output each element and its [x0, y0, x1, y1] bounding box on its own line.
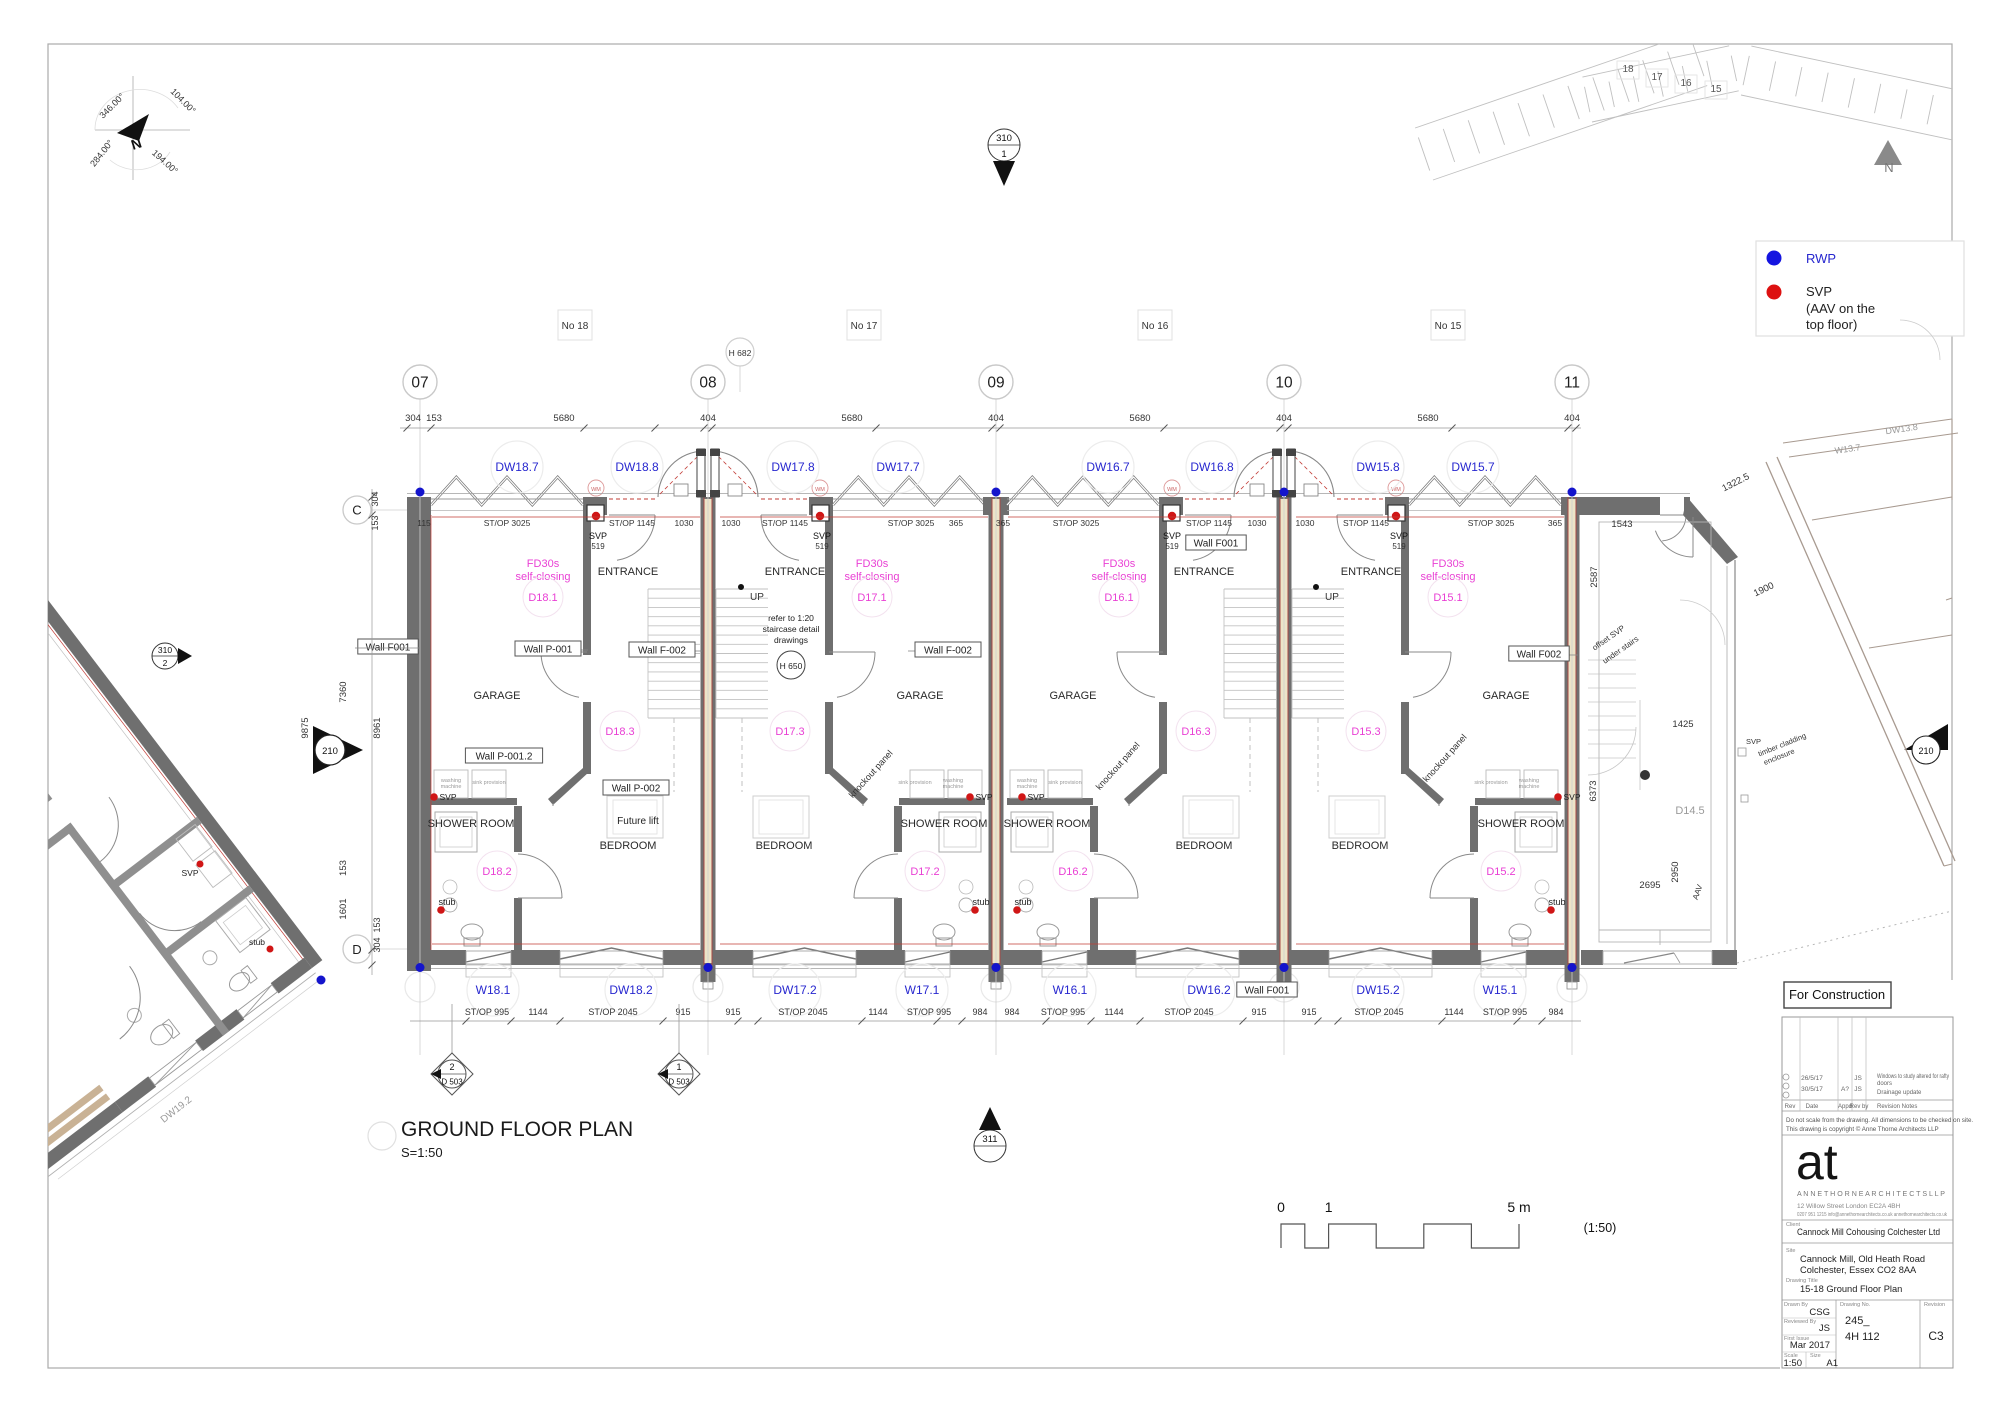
- svg-text:D 503: D 503: [441, 1078, 463, 1087]
- svg-text:S=1:50: S=1:50: [401, 1145, 443, 1160]
- svg-text:D15.1: D15.1: [1433, 592, 1462, 604]
- svg-text:W15.1: W15.1: [1483, 983, 1518, 997]
- svg-text:DW18.8: DW18.8: [615, 460, 659, 474]
- svg-text:6373: 6373: [1588, 780, 1599, 801]
- svg-text:5680: 5680: [1417, 413, 1438, 424]
- svg-text:Drawing No.: Drawing No.: [1840, 1302, 1871, 1308]
- svg-text:SVP: SVP: [1163, 531, 1181, 541]
- svg-text:RWP: RWP: [1806, 251, 1836, 266]
- svg-text:No 17: No 17: [851, 321, 878, 332]
- svg-text:D16.2: D16.2: [1058, 866, 1087, 878]
- svg-text:DW13.8: DW13.8: [1885, 422, 1919, 436]
- svg-text:A N N E T H O R N E A R C: A N N E T H O R N E A R C H I T E C T S …: [1797, 1191, 1945, 1198]
- svg-text:SHOWER ROOM: SHOWER ROOM: [1478, 818, 1565, 830]
- svg-text:W16.1: W16.1: [1053, 983, 1088, 997]
- svg-text:194.00°: 194.00°: [150, 148, 180, 177]
- svg-text:26/5/17: 26/5/17: [1801, 1075, 1823, 1082]
- svg-text:404: 404: [1564, 413, 1580, 424]
- svg-text:17: 17: [1651, 72, 1663, 83]
- svg-text:C3: C3: [1928, 1329, 1944, 1343]
- svg-text:machine: machine: [1519, 784, 1540, 790]
- svg-text:drawings: drawings: [774, 635, 808, 645]
- svg-text:ENTRANCE: ENTRANCE: [598, 566, 659, 578]
- svg-text:1030: 1030: [722, 518, 741, 528]
- svg-text:stub: stub: [249, 937, 265, 947]
- svg-text:No 15: No 15: [1435, 321, 1462, 332]
- svg-text:DW15.2: DW15.2: [1356, 983, 1400, 997]
- svg-text:7360: 7360: [338, 681, 349, 702]
- svg-text:1030: 1030: [675, 518, 694, 528]
- svg-text:Rev by: Rev by: [1850, 1104, 1869, 1110]
- svg-text:ST/OP 995: ST/OP 995: [1041, 1007, 1085, 1017]
- svg-text:915: 915: [1301, 1007, 1316, 1017]
- svg-text:knockout panel: knockout panel: [1421, 732, 1469, 784]
- svg-text:GROUND FLOOR PLAN: GROUND FLOOR PLAN: [401, 1118, 633, 1141]
- svg-text:GARAGE: GARAGE: [1482, 690, 1529, 702]
- svg-text:A?: A?: [1841, 1086, 1849, 1093]
- svg-text:GARAGE: GARAGE: [896, 690, 943, 702]
- svg-text:Wall F002: Wall F002: [1517, 650, 1562, 661]
- svg-text:SHOWER ROOM: SHOWER ROOM: [1004, 818, 1091, 830]
- svg-text:DW16.2: DW16.2: [1187, 983, 1231, 997]
- svg-text:210: 210: [322, 746, 338, 757]
- svg-text:DW17.8: DW17.8: [771, 460, 815, 474]
- svg-text:Wall F001: Wall F001: [1194, 539, 1239, 550]
- svg-text:153: 153: [372, 917, 382, 932]
- svg-text:DW16.7: DW16.7: [1086, 460, 1130, 474]
- svg-text:284.00°: 284.00°: [88, 138, 115, 169]
- svg-text:(AAV on the: (AAV on the: [1806, 301, 1875, 316]
- svg-text:D16.3: D16.3: [1181, 726, 1210, 738]
- svg-text:FD30s: FD30s: [1432, 558, 1465, 570]
- svg-text:UP: UP: [750, 592, 764, 603]
- svg-text:AAV: AAV: [1691, 883, 1705, 901]
- svg-text:210: 210: [1918, 746, 1933, 756]
- svg-text:310: 310: [158, 645, 172, 655]
- svg-text:915: 915: [725, 1007, 740, 1017]
- svg-text:115: 115: [417, 518, 431, 528]
- svg-text:Drainage update: Drainage update: [1877, 1090, 1922, 1096]
- svg-text:FD30s: FD30s: [527, 558, 560, 570]
- svg-text:365: 365: [949, 518, 963, 528]
- svg-text:ST/OP 3025: ST/OP 3025: [1468, 518, 1515, 528]
- svg-text:machine: machine: [943, 784, 964, 790]
- svg-text:ST/OP 1145: ST/OP 1145: [762, 518, 808, 528]
- svg-text:153: 153: [426, 413, 442, 424]
- svg-text:D: D: [352, 942, 361, 957]
- svg-text:stub: stub: [438, 897, 455, 907]
- svg-text:984: 984: [1004, 1007, 1019, 1017]
- svg-text:1543: 1543: [1611, 519, 1632, 530]
- svg-text:1:50: 1:50: [1784, 1358, 1803, 1369]
- svg-text:W13.7: W13.7: [1834, 442, 1861, 456]
- svg-text:D18.2: D18.2: [482, 866, 511, 878]
- svg-text:BEDROOM: BEDROOM: [1176, 840, 1233, 852]
- svg-text:2950: 2950: [1670, 861, 1681, 882]
- svg-text:1030: 1030: [1248, 518, 1267, 528]
- svg-text:D 503: D 503: [668, 1078, 690, 1087]
- svg-text:ST/OP 3025: ST/OP 3025: [888, 518, 935, 528]
- svg-text:SVP: SVP: [181, 868, 198, 878]
- svg-text:sink provision: sink provision: [472, 780, 505, 786]
- svg-text:ST/OP 3025: ST/OP 3025: [1053, 518, 1100, 528]
- svg-text:BEDROOM: BEDROOM: [1332, 840, 1389, 852]
- svg-text:15-18 Ground Floor Plan: 15-18 Ground Floor Plan: [1800, 1284, 1902, 1294]
- svg-text:1144: 1144: [1104, 1007, 1123, 1017]
- svg-text:DW15.8: DW15.8: [1356, 460, 1400, 474]
- svg-text:D15.3: D15.3: [1351, 726, 1380, 738]
- svg-text:1144: 1144: [528, 1007, 547, 1017]
- svg-text:9875: 9875: [300, 717, 311, 738]
- svg-text:H 682: H 682: [729, 348, 752, 358]
- svg-text:Reviewed By: Reviewed By: [1784, 1319, 1816, 1325]
- svg-text:JS: JS: [1819, 1323, 1830, 1334]
- svg-text:ST/OP 2045: ST/OP 2045: [778, 1007, 827, 1017]
- svg-text:5680: 5680: [841, 413, 862, 424]
- svg-text:984: 984: [1548, 1007, 1563, 1017]
- svg-text:refer to 1:20: refer to 1:20: [768, 613, 814, 623]
- svg-text:(1:50): (1:50): [1584, 1221, 1617, 1235]
- svg-text:1425: 1425: [1672, 719, 1693, 730]
- svg-text:This drawing is copyright: This drawing is copyright © Anne Thorne …: [1786, 1126, 1939, 1133]
- svg-text:SVP: SVP: [589, 531, 607, 541]
- svg-text:1: 1: [1001, 149, 1006, 160]
- svg-text:D18.3: D18.3: [605, 726, 634, 738]
- svg-text:Wall F-002: Wall F-002: [638, 646, 686, 657]
- svg-text:SVP: SVP: [813, 531, 831, 541]
- svg-text:ST/OP 995: ST/OP 995: [1483, 1007, 1527, 1017]
- svg-text:519: 519: [815, 542, 829, 551]
- svg-text:Wall F-002: Wall F-002: [924, 646, 972, 657]
- svg-text:07: 07: [411, 375, 428, 392]
- svg-text:SVP: SVP: [439, 792, 456, 802]
- svg-text:DW16.8: DW16.8: [1190, 460, 1234, 474]
- svg-text:Site: Site: [1786, 1248, 1795, 1254]
- svg-text:D17.1: D17.1: [857, 592, 886, 604]
- svg-text:404: 404: [988, 413, 1004, 424]
- svg-text:15: 15: [1710, 84, 1722, 95]
- svg-text:ENTRANCE: ENTRANCE: [1174, 566, 1235, 578]
- svg-text:365: 365: [996, 518, 1010, 528]
- svg-text:staircase detail: staircase detail: [763, 624, 820, 634]
- svg-text:D16.1: D16.1: [1104, 592, 1133, 604]
- svg-text:304: 304: [405, 413, 421, 424]
- svg-text:Cannock Mill, Old Heath Road: Cannock Mill, Old Heath Road: [1800, 1254, 1925, 1264]
- svg-text:DW18.2: DW18.2: [609, 983, 653, 997]
- svg-text:DW17.7: DW17.7: [876, 460, 920, 474]
- svg-text:30/5/17: 30/5/17: [1801, 1086, 1823, 1093]
- svg-text:SVP: SVP: [1746, 737, 1761, 746]
- svg-text:5680: 5680: [1129, 413, 1150, 424]
- svg-text:2587: 2587: [1589, 566, 1600, 587]
- svg-text:stub: stub: [1548, 897, 1565, 907]
- svg-text:No 16: No 16: [1142, 321, 1169, 332]
- svg-text:Wall P-001: Wall P-001: [524, 645, 573, 656]
- svg-text:sink provision: sink provision: [1048, 780, 1081, 786]
- svg-text:DW17.2: DW17.2: [773, 983, 817, 997]
- svg-text:915: 915: [675, 1007, 690, 1017]
- svg-text:SVP: SVP: [1027, 792, 1044, 802]
- svg-text:Cannock Mill Cohousing Colches: Cannock Mill Cohousing Colchester Ltd: [1797, 1227, 1940, 1237]
- svg-text:ST/OP 2045: ST/OP 2045: [1164, 1007, 1213, 1017]
- svg-text:For Construction: For Construction: [1789, 987, 1885, 1002]
- svg-text:ST/OP 2045: ST/OP 2045: [1354, 1007, 1403, 1017]
- svg-text:1: 1: [1325, 1199, 1333, 1215]
- svg-text:D18.1: D18.1: [528, 592, 557, 604]
- svg-text:Drawn By: Drawn By: [1784, 1302, 1808, 1308]
- svg-text:5680: 5680: [553, 413, 574, 424]
- svg-text:ST/OP 1145: ST/OP 1145: [1186, 518, 1232, 528]
- svg-text:2: 2: [449, 1062, 454, 1072]
- svg-text:1900: 1900: [1752, 580, 1776, 599]
- svg-text:Wall P-001.2: Wall P-001.2: [476, 752, 533, 763]
- svg-text:245_: 245_: [1845, 1315, 1870, 1327]
- svg-text:311: 311: [982, 1134, 997, 1145]
- svg-text:ST/OP 1145: ST/OP 1145: [1343, 518, 1389, 528]
- svg-text:UP: UP: [1325, 592, 1339, 603]
- svg-text:sink provision: sink provision: [898, 780, 931, 786]
- svg-text:DW15.7: DW15.7: [1451, 460, 1495, 474]
- svg-text:365: 365: [1548, 518, 1562, 528]
- svg-text:WM: WM: [591, 487, 601, 493]
- svg-text:ST/OP 3025: ST/OP 3025: [484, 518, 531, 528]
- svg-text:Size: Size: [1810, 1353, 1821, 1359]
- svg-text:10: 10: [1275, 375, 1293, 392]
- svg-text:Wall F001: Wall F001: [1245, 986, 1290, 997]
- svg-text:sink provision: sink provision: [1474, 780, 1507, 786]
- svg-text:top floor): top floor): [1806, 317, 1857, 332]
- svg-text:18: 18: [1622, 64, 1634, 75]
- svg-text:1030: 1030: [1296, 518, 1315, 528]
- svg-text:Colchester, Essex CO2 8AA: Colchester, Essex CO2 8AA: [1800, 1265, 1917, 1275]
- svg-text:CSG: CSG: [1809, 1307, 1830, 1318]
- svg-text:FD30s: FD30s: [856, 558, 889, 570]
- svg-text:8961: 8961: [372, 717, 383, 738]
- svg-text:DW18.7: DW18.7: [495, 460, 539, 474]
- svg-text:BEDROOM: BEDROOM: [600, 840, 657, 852]
- svg-text:Windows to study altered for r: Windows to study altered for rafty: [1877, 1074, 1949, 1080]
- svg-text:304: 304: [370, 491, 380, 506]
- svg-text:BEDROOM: BEDROOM: [756, 840, 813, 852]
- svg-text:D17.3: D17.3: [775, 726, 804, 738]
- svg-text:404: 404: [700, 413, 716, 424]
- svg-text:915: 915: [1251, 1007, 1266, 1017]
- svg-text:1144: 1144: [868, 1007, 887, 1017]
- svg-text:Revision: Revision: [1924, 1302, 1945, 1308]
- svg-text:ENTRANCE: ENTRANCE: [1341, 566, 1402, 578]
- svg-text:D17.2: D17.2: [910, 866, 939, 878]
- svg-text:5 m: 5 m: [1507, 1199, 1530, 1215]
- svg-text:D14.5: D14.5: [1675, 805, 1704, 817]
- svg-text:No 18: No 18: [562, 321, 589, 332]
- svg-text:SHOWER ROOM: SHOWER ROOM: [428, 818, 515, 830]
- svg-text:ST/OP 995: ST/OP 995: [907, 1007, 951, 1017]
- svg-text:Future lift: Future lift: [617, 816, 659, 827]
- svg-text:104.00°: 104.00°: [169, 86, 198, 115]
- svg-text:1144: 1144: [1444, 1007, 1463, 1017]
- svg-text:08: 08: [699, 375, 716, 392]
- svg-text:519: 519: [591, 542, 605, 551]
- svg-text:doors: doors: [1877, 1081, 1892, 1087]
- svg-text:1322.5: 1322.5: [1720, 471, 1751, 494]
- svg-text:GARAGE: GARAGE: [1049, 690, 1096, 702]
- svg-text:310: 310: [996, 133, 1012, 144]
- svg-text:W17.1: W17.1: [905, 983, 940, 997]
- svg-text:1601: 1601: [338, 898, 349, 919]
- svg-text:at: at: [1796, 1134, 1838, 1190]
- svg-text:153: 153: [338, 860, 349, 876]
- svg-text:Wall P-002: Wall P-002: [612, 784, 661, 795]
- svg-text:N: N: [129, 135, 144, 153]
- svg-text:SVP: SVP: [975, 792, 992, 802]
- svg-text:346.00°: 346.00°: [97, 91, 126, 120]
- svg-text:Mar 2017: Mar 2017: [1790, 1340, 1830, 1351]
- svg-text:Date: Date: [1806, 1104, 1819, 1110]
- svg-text:H 650: H 650: [780, 661, 803, 671]
- svg-text:4H 112: 4H 112: [1845, 1331, 1880, 1343]
- svg-text:Revision Notes: Revision Notes: [1877, 1104, 1917, 1110]
- svg-text:SVP: SVP: [1563, 792, 1580, 802]
- svg-text:0207 951 1215 info@annethorne: 0207 951 1215 info@annethornearchitects.…: [1797, 1212, 1947, 1218]
- svg-text:stub: stub: [972, 897, 989, 907]
- svg-text:DW19.2: DW19.2: [159, 1094, 195, 1125]
- svg-text:WM: WM: [1167, 487, 1177, 493]
- svg-text:stub: stub: [1014, 897, 1031, 907]
- svg-text:SHOWER ROOM: SHOWER ROOM: [901, 818, 988, 830]
- svg-text:304: 304: [372, 937, 382, 952]
- svg-text:knockout panel: knockout panel: [1094, 740, 1142, 792]
- svg-text:knockout panel: knockout panel: [847, 748, 895, 800]
- svg-text:GARAGE: GARAGE: [473, 690, 520, 702]
- svg-text:12 Willow Street London EC2A: 12 Willow Street London EC2A 4BH: [1797, 1203, 1901, 1210]
- svg-text:Rev: Rev: [1785, 1104, 1796, 1110]
- svg-text:FD30s: FD30s: [1103, 558, 1136, 570]
- svg-text:1: 1: [676, 1062, 681, 1072]
- svg-text:D15.2: D15.2: [1486, 866, 1515, 878]
- svg-text:JS: JS: [1854, 1075, 1862, 1082]
- svg-text:ENTRANCE: ENTRANCE: [765, 566, 826, 578]
- svg-text:machine: machine: [1017, 784, 1038, 790]
- svg-text:machine: machine: [441, 784, 462, 790]
- svg-text:ST/OP 2045: ST/OP 2045: [588, 1007, 637, 1017]
- svg-text:09: 09: [987, 375, 1004, 392]
- svg-text:SVP: SVP: [1390, 531, 1408, 541]
- svg-text:N: N: [1884, 160, 1893, 175]
- svg-text:SVP: SVP: [1806, 284, 1832, 299]
- svg-text:2: 2: [163, 658, 168, 668]
- svg-text:WM: WM: [815, 487, 825, 493]
- svg-text:W18.1: W18.1: [476, 983, 511, 997]
- svg-text:153: 153: [370, 515, 380, 530]
- svg-text:Do not scale from the drawing.: Do not scale from the drawing. All dimen…: [1786, 1117, 1973, 1124]
- svg-text:ST/OP 995: ST/OP 995: [465, 1007, 509, 1017]
- svg-text:984: 984: [972, 1007, 987, 1017]
- svg-text:JS: JS: [1854, 1086, 1862, 1093]
- svg-text:C: C: [352, 503, 361, 518]
- svg-text:519: 519: [1165, 542, 1179, 551]
- svg-text:16: 16: [1680, 78, 1692, 89]
- svg-text:ST/OP 1145: ST/OP 1145: [609, 518, 655, 528]
- svg-text:A1: A1: [1826, 1358, 1838, 1369]
- svg-text:2695: 2695: [1639, 880, 1660, 891]
- svg-text:404: 404: [1276, 413, 1292, 424]
- svg-text:0: 0: [1277, 1199, 1285, 1215]
- svg-text:11: 11: [1564, 375, 1580, 392]
- svg-text:519: 519: [1392, 542, 1406, 551]
